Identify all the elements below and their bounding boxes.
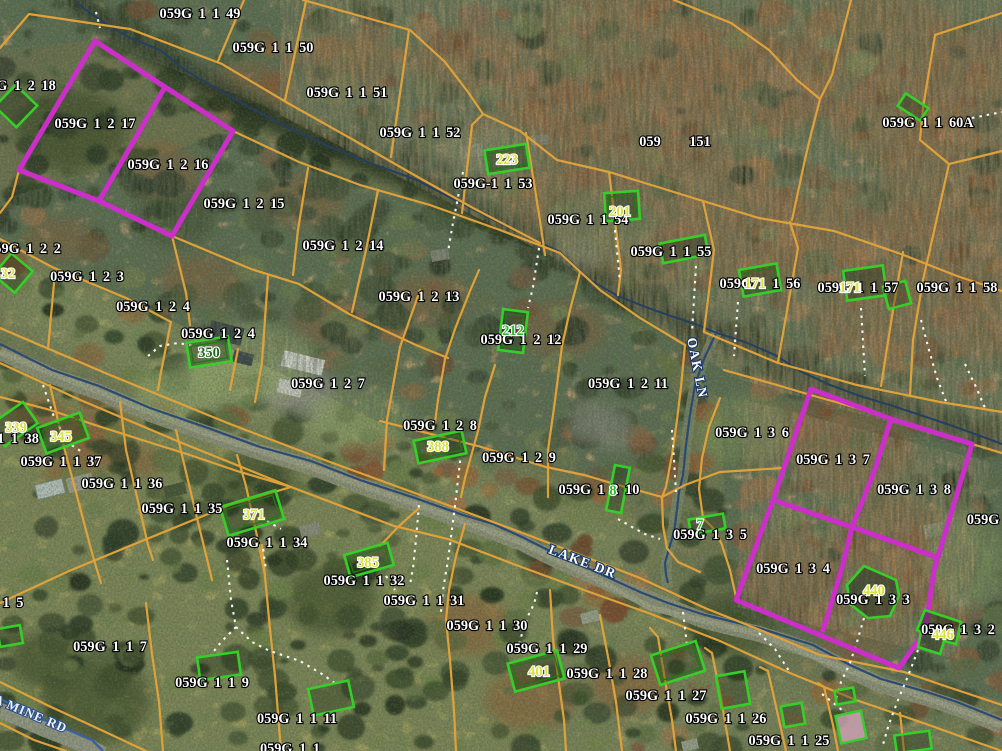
svg-text:059G 1 1 7: 059G 1 1 7 <box>73 639 147 655</box>
svg-text:059G 1 2 7: 059G 1 2 7 <box>291 376 365 392</box>
svg-text:059G 1 2 15: 059G 1 2 15 <box>204 196 285 212</box>
svg-text:223: 223 <box>496 152 517 168</box>
svg-text:7: 7 <box>696 517 703 533</box>
svg-text:171: 171 <box>839 280 860 296</box>
svg-text:059G 1 3 4: 059G 1 3 4 <box>756 561 830 577</box>
svg-text:059G 1 3 7: 059G 1 3 7 <box>796 452 870 468</box>
svg-text:059G 1 1 29: 059G 1 1 29 <box>507 641 588 657</box>
svg-text:059G 1 2 13: 059G 1 2 13 <box>379 289 460 305</box>
svg-text:059G 1 2 14: 059G 1 2 14 <box>303 238 384 254</box>
svg-text:059G 1 1 50: 059G 1 1 50 <box>233 40 314 56</box>
svg-text:151: 151 <box>689 134 710 150</box>
svg-text:171: 171 <box>744 276 765 292</box>
svg-text:059: 059 <box>639 134 660 150</box>
svg-text:345: 345 <box>50 429 71 445</box>
svg-text:059G 1 2 10: 059G 1 2 10 <box>559 482 640 498</box>
svg-text:059G 1 1 26: 059G 1 1 26 <box>686 711 767 727</box>
svg-text:059G 1 1 9: 059G 1 1 9 <box>175 675 249 691</box>
svg-text:059G 1: 059G 1 <box>967 512 1002 528</box>
svg-text:059G 1 1 27: 059G 1 1 27 <box>626 688 707 704</box>
svg-text:059G 1 3 5: 059G 1 3 5 <box>673 527 747 543</box>
svg-text:059G 1 1 37: 059G 1 1 37 <box>21 454 102 470</box>
svg-text:371: 371 <box>243 507 264 523</box>
svg-text:059G-1 1 53: 059G-1 1 53 <box>453 176 532 192</box>
svg-text:059G 1 1 32: 059G 1 1 32 <box>324 573 405 589</box>
svg-text:385: 385 <box>357 555 378 571</box>
svg-text:059G 1 1 28: 059G 1 1 28 <box>567 666 648 682</box>
svg-text:059G 1 3 8: 059G 1 3 8 <box>877 482 951 498</box>
svg-text:059G 1 2 17: 059G 1 2 17 <box>55 116 136 132</box>
svg-text:059G 1 2 11: 059G 1 2 11 <box>588 376 668 392</box>
svg-text:059G 1 1 35: 059G 1 1 35 <box>142 501 223 517</box>
svg-text:059G 1 1 51: 059G 1 1 51 <box>307 85 388 101</box>
svg-text:440: 440 <box>863 583 884 599</box>
svg-text:059G 1 1 49: 059G 1 1 49 <box>160 6 241 22</box>
svg-text:32: 32 <box>1 266 15 282</box>
svg-text:059G 1 2 4: 059G 1 2 4 <box>181 326 255 342</box>
svg-text:446: 446 <box>932 627 953 643</box>
svg-text:059G 1 1 60A: 059G 1 1 60A <box>882 115 974 131</box>
svg-text:059G 1 1 36: 059G 1 1 36 <box>82 476 163 492</box>
svg-text:059G 1 2 9: 059G 1 2 9 <box>482 450 556 466</box>
svg-text:339: 339 <box>5 420 26 436</box>
svg-text:388: 388 <box>427 439 448 455</box>
svg-text:8: 8 <box>609 483 616 499</box>
svg-text:059G 1 1 30: 059G 1 1 30 <box>447 618 528 634</box>
svg-text:059G 1 2 16: 059G 1 2 16 <box>128 157 209 173</box>
svg-text:059G 1 1 58: 059G 1 1 58 <box>917 280 998 296</box>
svg-text:212: 212 <box>502 323 523 339</box>
svg-text:059G 1 2 2: 059G 1 2 2 <box>0 241 61 257</box>
svg-text:059G 1 1 11: 059G 1 1 11 <box>257 711 337 727</box>
svg-text:059G 1 2 4: 059G 1 2 4 <box>116 299 190 315</box>
svg-text:059G 1 1 25: 059G 1 1 25 <box>749 733 830 749</box>
svg-text:059G 1 2 3: 059G 1 2 3 <box>50 269 124 285</box>
svg-text:201: 201 <box>609 204 630 220</box>
svg-text:401: 401 <box>528 664 549 680</box>
svg-text:059G 1 3 6: 059G 1 3 6 <box>715 425 789 441</box>
svg-text:059G 1 1 34: 059G 1 1 34 <box>227 535 308 551</box>
svg-text:059G 1 1 55: 059G 1 1 55 <box>631 244 712 260</box>
svg-text:059G 1 2 8: 059G 1 2 8 <box>403 418 477 434</box>
svg-text:059G 1 1 52: 059G 1 1 52 <box>380 125 461 141</box>
svg-text:350: 350 <box>198 345 219 361</box>
svg-text:G 1 2 18: G 1 2 18 <box>0 78 56 94</box>
svg-text:059G 1 1: 059G 1 1 <box>260 741 320 751</box>
svg-text:1 5: 1 5 <box>3 595 24 611</box>
svg-text:059G 1 1 31: 059G 1 1 31 <box>384 593 465 609</box>
